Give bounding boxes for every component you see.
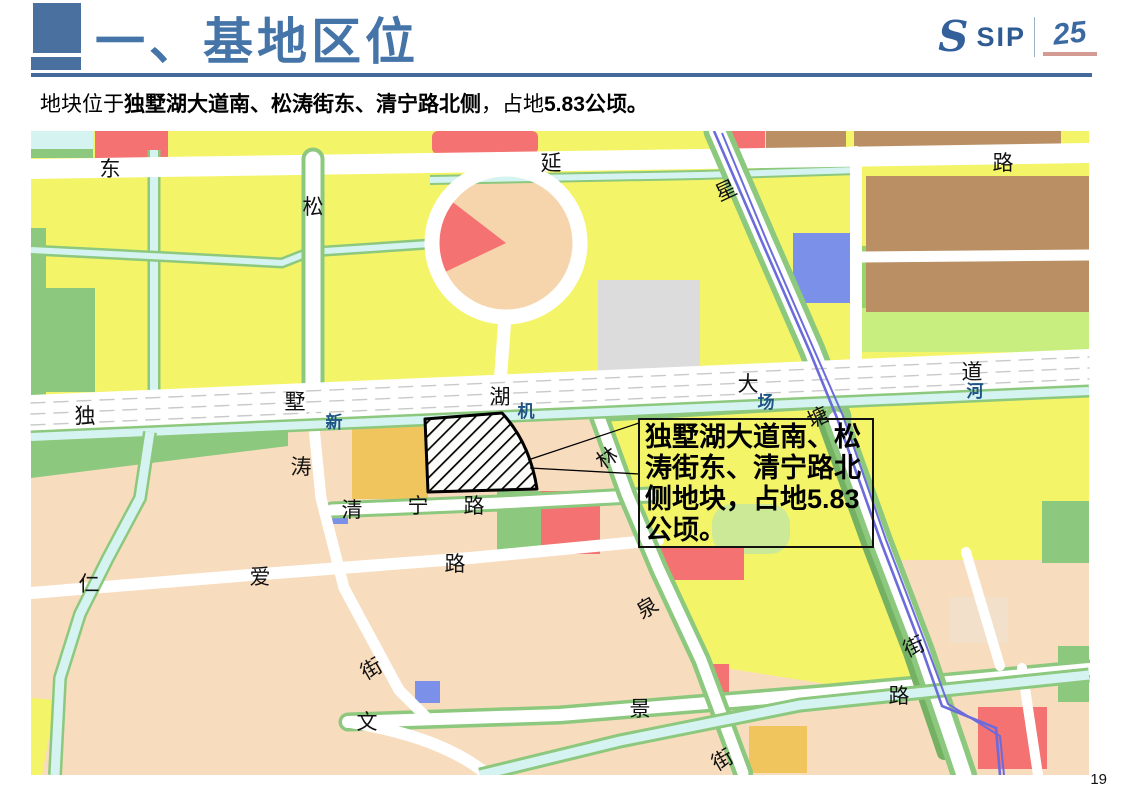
map-road-label: 场	[758, 393, 775, 412]
site-callout: 独墅湖大道南、松涛街东、清宁路北侧地块，占地5.83公顷。	[638, 418, 874, 548]
map-road-label: 路	[445, 553, 466, 576]
map-road-label: 新	[326, 412, 343, 432]
subtitle-mid: ，占地	[481, 93, 544, 116]
map-road-label: 墅	[285, 391, 306, 414]
subtitle-roads: 独墅湖大道南、松涛街东、清宁路北侧	[124, 93, 481, 116]
logo-divider	[1034, 17, 1035, 57]
map-road-label: 爱	[250, 566, 271, 589]
map-road-label: 仁	[79, 573, 100, 596]
slide-subtitle: 地块位于独墅湖大道南、松涛街东、清宁路北侧，占地5.83公顷。	[40, 88, 648, 118]
header-divider	[31, 73, 1092, 77]
anniversary-logo: 25	[1043, 19, 1097, 56]
subtitle-prefix: 地块位于	[40, 93, 124, 116]
map-road-label: 景	[630, 698, 651, 721]
map-road-label: 湖	[490, 386, 511, 409]
map-road-label: 机	[518, 401, 535, 421]
map-road-label: 河	[967, 382, 984, 401]
map-road-label: 松	[303, 196, 324, 219]
map-road-label: 路	[889, 685, 910, 708]
land-use-map: 东延路松星独墅湖大道新机场河塘涛林清宁路仁爱路泉街文景路街街	[30, 131, 1090, 775]
map-road-label: 宁	[408, 495, 429, 518]
presentation-slide: 一、基地区位 S SIP 25 地块位于独墅湖大道南、松涛街东、清宁路北侧，占地…	[0, 0, 1123, 794]
map-road-label: 大	[738, 373, 759, 396]
anniversary-25: 25	[1052, 17, 1088, 50]
header-accent-square	[33, 3, 81, 53]
map-road-label: 清	[342, 499, 363, 522]
map-road-label: 道	[962, 361, 983, 384]
land-use-map-svg: 东延路松星独墅湖大道新机场河塘涛林清宁路仁爱路泉街文景路街街	[30, 131, 1090, 775]
map-road-label: 路	[993, 152, 1014, 175]
map-road-label: 文	[357, 711, 378, 734]
header-accent-bar	[31, 57, 81, 70]
sip-logo: S SIP 25	[938, 16, 1097, 58]
map-road-label: 独	[75, 405, 96, 428]
map-road-label: 涛	[291, 456, 312, 479]
sip-logo-text: SIP	[976, 22, 1026, 53]
anniversary-small-text	[1043, 52, 1097, 56]
map-road-label: 东	[100, 158, 121, 181]
page-title: 一、基地区位	[95, 2, 419, 74]
sip-logo-swoosh: S	[938, 16, 968, 58]
map-road-label: 延	[541, 152, 562, 175]
page-number: 19	[1090, 771, 1107, 788]
subtitle-area: 5.83公顷。	[544, 93, 648, 116]
map-road-label: 路	[464, 495, 485, 518]
